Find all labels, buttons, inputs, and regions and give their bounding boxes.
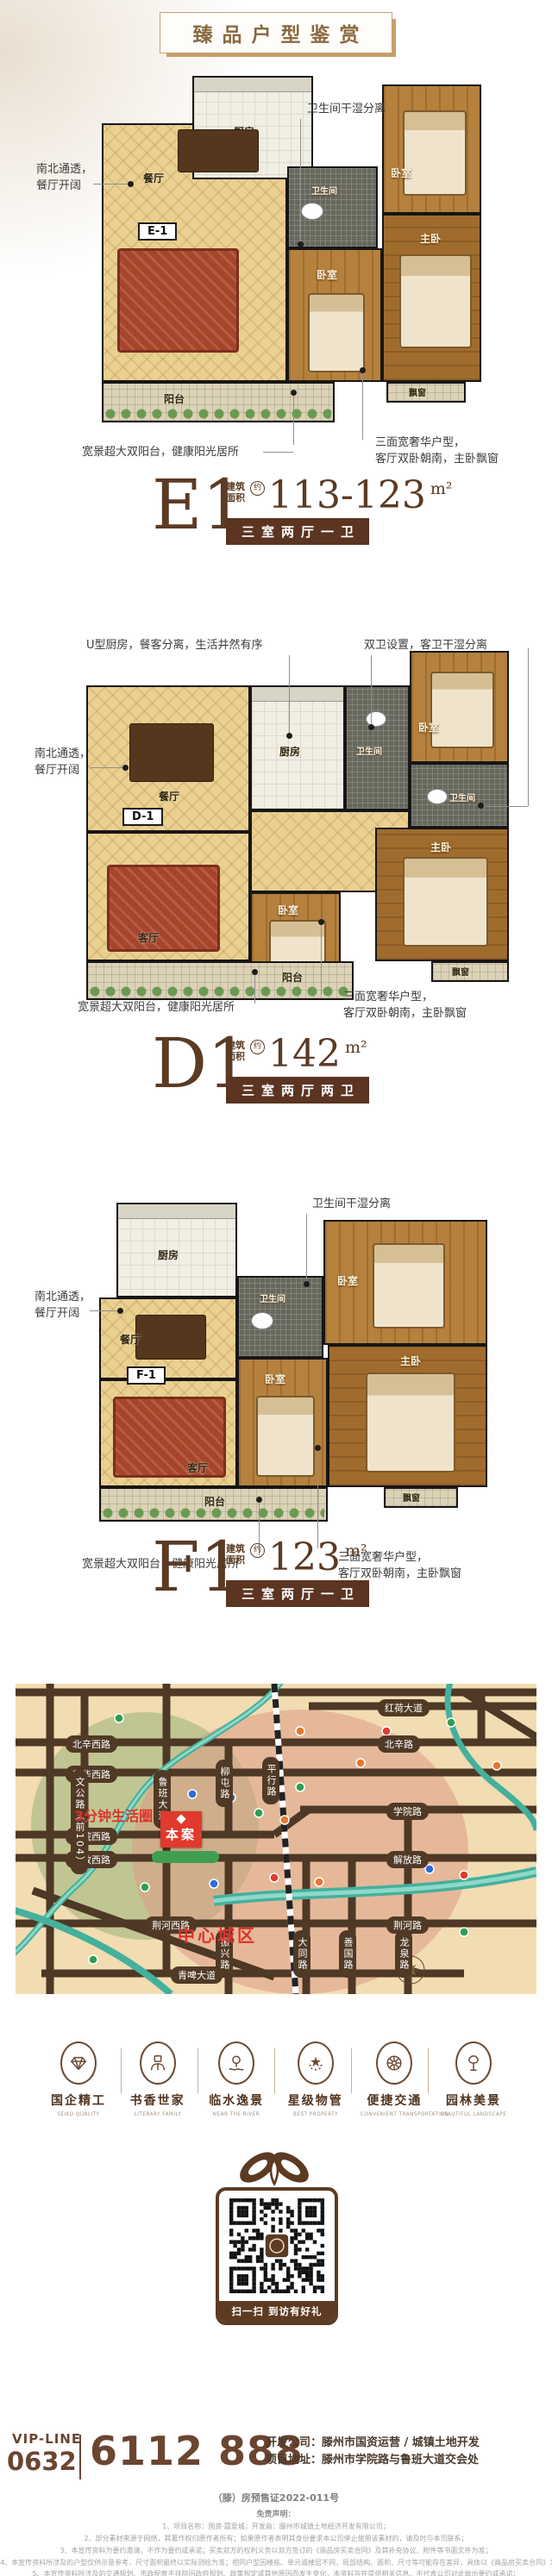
- room-bathroom: 卫生间: [237, 1276, 323, 1358]
- feature-item: 临水逸景 NEAR THE RIVER: [201, 2041, 272, 2117]
- room-label: 餐厅: [120, 1332, 141, 1347]
- callout-balcony: 宽景超大双阳台，健康阳光居所: [78, 1000, 235, 1016]
- contact-info: 开发公司：滕州市国资运营 / 城镇土地开发 项目地址：滕州市学院路与鲁班大道交会…: [266, 2435, 480, 2469]
- area-value: 123: [268, 1540, 341, 1576]
- room-kitchen: 厨房: [250, 685, 345, 810]
- plan-badge: E-1: [138, 222, 177, 241]
- stars-icon: [298, 2041, 334, 2085]
- room-label: 卧室: [418, 720, 439, 735]
- road-label: 柳屯路: [216, 1760, 233, 1807]
- room-bedroom-mid: 卧室: [287, 248, 382, 382]
- area-prefix: 建筑面积: [226, 1543, 248, 1566]
- life-circle-label: 3分钟生活圈: [74, 1804, 153, 1825]
- room-bathroom-guest: 卫生间: [345, 685, 410, 810]
- qr-code: 扫一扫 到访有好礼: [216, 2187, 338, 2325]
- room-label: 卧室: [265, 1372, 285, 1386]
- room-living: 客厅: [86, 832, 250, 961]
- callout-north-south: 南北通透， 餐厅开阔: [36, 162, 92, 195]
- floorplan-f1: 厨房 卫生间 卧室 餐厅 客厅 卧室 主卧 阳台: [99, 1203, 487, 1522]
- site-marker: 本案: [160, 1811, 202, 1848]
- qr-caption: 扫一扫 到访有好礼: [219, 2301, 335, 2322]
- feature-sub: CONVENIENT TRANSPORTATION: [361, 2111, 428, 2117]
- road-label: 青啤大道: [171, 1966, 223, 1984]
- approx-mark: 约: [250, 1543, 265, 1558]
- feature-sub: LITERARY FAMILY: [124, 2111, 191, 2117]
- road-label: 北辛西路: [66, 1735, 117, 1753]
- site-label: 本案: [166, 1825, 197, 1843]
- callout-bath-dry-wet: 卫生间干湿分离: [312, 1197, 391, 1213]
- disclaimer-item: 4、本宣传资料所涉及的户型仅供示意参考，尺寸面积最终以实际测绘为准；相同户型因楼…: [0, 2558, 552, 2567]
- room-master: 主卧: [375, 828, 509, 961]
- feature-divider: [351, 2048, 352, 2093]
- disclaimer-item: 3、本宣传资料为要约邀请，不作为要约或承诺；买卖双方的权利义务以双方签订的《商品…: [0, 2546, 552, 2555]
- approx-mark: 约: [250, 1040, 265, 1054]
- contact-divider: [79, 2435, 81, 2479]
- disclaimer-item: 1、项目名称：国资·囍爱城；开发商：滕州市城镇土地经济开发有限公司；: [0, 2522, 552, 2531]
- poster-page: 臻品户型鉴赏 厨房 卫生间 卧室 主卧 卧室 阳台 飘窗: [0, 0, 552, 2576]
- room-label: 阳台: [282, 970, 303, 985]
- room-master: 主卧: [382, 214, 481, 382]
- room-label: 飘窗: [452, 965, 469, 978]
- center-city-label: 中心城区: [178, 1922, 257, 1947]
- room-label: 卧室: [278, 903, 298, 917]
- road-label: 北辛路: [378, 1735, 420, 1753]
- room-label: 阳台: [164, 391, 185, 406]
- area-code: 0632: [7, 2447, 77, 2476]
- disclaimer-heading: 免责声明：: [0, 2508, 552, 2519]
- developer-line: 开发公司：滕州市国资运营 / 城镇土地开发: [266, 2435, 480, 2452]
- feature-label: 园林美景: [438, 2091, 509, 2109]
- tree-icon: [455, 2041, 492, 2085]
- room-bedroom-mid: 卧室: [237, 1358, 328, 1487]
- room-bedroom-top: 卧室: [410, 651, 509, 763]
- vip-line-label: VIP-LINE: [12, 2431, 81, 2447]
- feature-divider: [121, 2048, 122, 2093]
- callout-north-south: 南北通透， 餐厅开阔: [34, 747, 91, 779]
- room-label: 卫生间: [449, 791, 475, 803]
- plan-id: E1: [152, 478, 224, 533]
- area-unit: m²: [345, 1038, 367, 1057]
- feature-item: 书香世家 LITERARY FAMILY: [122, 2041, 193, 2117]
- room-bathroom-master: 卫生间: [410, 763, 509, 828]
- plan-id: D1: [152, 1036, 224, 1091]
- callout-north-south: 南北通透， 餐厅开阔: [34, 1290, 91, 1322]
- title-banner: 臻品户型鉴赏: [160, 12, 392, 53]
- room-balcony: 阳台: [86, 961, 354, 1000]
- feature-label: 便捷交通: [359, 2091, 430, 2109]
- road-label: 大同路: [293, 1930, 310, 1978]
- feature-sub: BEST PROPERTY: [282, 2111, 349, 2117]
- feature-item: 便捷交通 CONVENIENT TRANSPORTATION: [359, 2041, 430, 2117]
- room-living: 客厅: [99, 1379, 237, 1487]
- callout-balcony: 宽景超大双阳台，健康阳光居所: [82, 445, 239, 461]
- gem-icon: [60, 2041, 97, 2085]
- area-unit: m²: [430, 479, 453, 498]
- approx-mark: 约: [250, 481, 265, 496]
- room-bay-window: 飘窗: [431, 961, 509, 982]
- room-label: 阳台: [204, 1494, 225, 1509]
- room-bay-window: 飘窗: [386, 382, 466, 403]
- callout-south-rooms: 三面宽奢华户型， 客厅双卧朝南，主卧飘窗: [375, 435, 499, 468]
- room-label: 飘窗: [409, 385, 426, 398]
- room-label: 客厅: [138, 930, 159, 945]
- plan-spec: 三室两厅一卫: [226, 1580, 369, 1607]
- disclaimer-item: 5、本宣传资料所涉及的交通规划、市政配套不排除因政府规划、政策规定或其他原因而发…: [0, 2569, 552, 2576]
- wheel-icon: [376, 2041, 412, 2085]
- feature-divider: [428, 2048, 429, 2093]
- room-label: 主卧: [420, 231, 441, 246]
- room-label: 卫生间: [356, 744, 382, 757]
- address-line: 项目地址：滕州市学院路与鲁班大道交会处: [266, 2452, 480, 2469]
- plan-spec: 三室两厅一卫: [226, 518, 369, 545]
- location-map: 红荷大道 北辛西路 北辛路 新华西路 学院西路 学院路 解放西路 解放路 荆河西…: [16, 1684, 536, 1994]
- presale-permit: （滕）房预售证2022-011号: [0, 2491, 552, 2504]
- scholar-icon: [140, 2041, 176, 2085]
- road-label: 龙泉路: [395, 1930, 412, 1978]
- feature-row: 国企精工 SEIKO QUALITY 书香世家 LITERARY FAMILY …: [43, 2041, 509, 2117]
- room-label: 主卧: [430, 840, 451, 854]
- feature-sub: SEIKO QUALITY: [45, 2111, 112, 2117]
- feature-sub: BEAUTIFUL LANDSCAPE: [440, 2111, 507, 2117]
- feature-divider: [274, 2048, 275, 2093]
- site-logo-mark: [176, 1814, 185, 1823]
- feature-label: 国企精工: [43, 2091, 114, 2109]
- plan-id: F1: [152, 1540, 224, 1595]
- callout-bath-dry-wet: 卫生间干湿分离: [307, 102, 386, 118]
- feature-item: 园林美景 BEAUTIFUL LANDSCAPE: [438, 2041, 509, 2117]
- callout-south-rooms: 三面宽奢华户型， 客厅双卧朝南，主卧飘窗: [343, 990, 467, 1022]
- area-value: 142: [268, 1036, 341, 1072]
- room-label: 主卧: [400, 1354, 421, 1368]
- room-label: 餐厅: [143, 171, 164, 185]
- feature-item: 国企精工 SEIKO QUALITY: [43, 2041, 114, 2117]
- plan-badge: D-1: [122, 808, 163, 826]
- floorplan-d1: 餐厅 厨房 卫生间 卧室 卫生间 客厅 卧室 主卧: [86, 651, 509, 1000]
- feature-divider: [198, 2048, 198, 2093]
- disclaimer-item: 2、部分素材来源于网络，其著作权归原作者所有；如果原作者表明其身份要求本公司停止…: [0, 2534, 552, 2543]
- area-prefix: 建筑面积: [226, 1040, 248, 1062]
- room-kitchen: 厨房: [116, 1203, 237, 1297]
- plan-title-e1: E1 建筑面积 约 113-123 m² 三室两厅一卫: [152, 478, 452, 545]
- gift-bow-icon: [235, 2141, 314, 2193]
- waterside-tree-icon: [218, 2041, 254, 2085]
- room-label: 厨房: [279, 744, 300, 759]
- plan-badge: F-1: [127, 1366, 166, 1385]
- feature-label: 星级物管: [280, 2091, 351, 2109]
- page-title: 臻品户型鉴赏: [184, 18, 369, 47]
- road-label: 学院路: [386, 1803, 429, 1820]
- room-balcony: 阳台: [99, 1487, 328, 1522]
- plan-spec: 三室两厅两卫: [226, 1077, 369, 1104]
- room-bay-window: 飘窗: [384, 1487, 458, 1508]
- room-label: 卧室: [317, 267, 337, 282]
- feature-label: 临水逸景: [201, 2091, 272, 2109]
- room-master: 主卧: [328, 1345, 487, 1487]
- callout-u-kitchen: U型厨房，餐客分离，生活井然有序: [86, 638, 263, 654]
- area-value: 113-123: [268, 478, 426, 514]
- feature-label: 书香世家: [122, 2091, 193, 2109]
- room-label: 餐厅: [159, 789, 179, 803]
- road-label: 红荷大道: [378, 1699, 430, 1716]
- callout-two-baths: 双卫设置，客卫干湿分离: [364, 638, 487, 654]
- room-label: 厨房: [158, 1247, 179, 1262]
- room-label: 卫生间: [260, 1291, 285, 1304]
- road-label: 善国路: [339, 1930, 356, 1978]
- plan-title-d1: D1 建筑面积 约 142 m² 三室两厅两卫: [152, 1036, 369, 1104]
- floorplan-e1: 厨房 卫生间 卧室 主卧 卧室 阳台 飘窗 餐厅 客厅 E-1: [102, 76, 481, 422]
- road-label: 平行路: [262, 1757, 279, 1804]
- room-label: 客厅: [187, 1460, 208, 1475]
- feature-item: 星级物管 BEST PROPERTY: [280, 2041, 351, 2117]
- room-label: 卧室: [391, 166, 411, 180]
- room-bedroom-top: 卧室: [323, 1220, 487, 1345]
- area-unit: m²: [345, 1541, 367, 1560]
- room-label: 卧室: [337, 1273, 358, 1288]
- room-label: 飘窗: [403, 1491, 420, 1504]
- area-prefix: 建筑面积: [226, 481, 248, 503]
- room-balcony: 阳台: [102, 382, 335, 422]
- road-label: 解放路: [386, 1851, 429, 1868]
- room-label: 卫生间: [311, 184, 337, 197]
- feature-sub: NEAR THE RIVER: [203, 2111, 270, 2117]
- plan-title-f1: F1 建筑面积 约 123 m² 三室两厅一卫: [152, 1540, 369, 1607]
- room-bedroom-top: 卧室: [382, 84, 481, 214]
- park-banner: [152, 1851, 219, 1863]
- room-dining: 餐厅: [86, 685, 250, 832]
